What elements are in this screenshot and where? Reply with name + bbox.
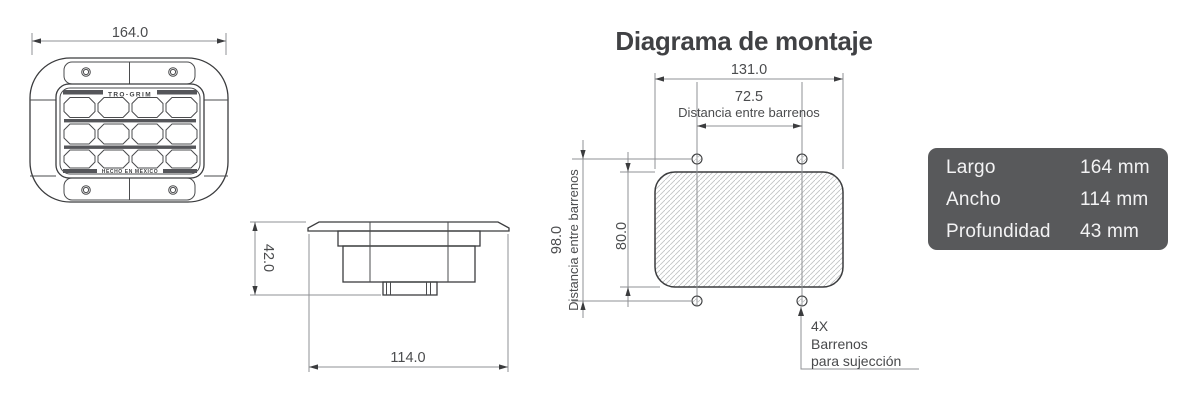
spec-row-largo: Largo 164 mm bbox=[928, 153, 1168, 182]
hole-spacing-horizontal-label: Distancia entre barrenos bbox=[678, 105, 820, 120]
cutout-height-dimension: 80.0 bbox=[614, 152, 660, 307]
cutout-shape bbox=[655, 172, 843, 287]
brand-band-left bbox=[63, 90, 103, 95]
holes-note: 4X Barrenos para sujección bbox=[798, 307, 919, 369]
side-depth-value: 42.0 bbox=[260, 244, 276, 272]
made-in-label: HECHO EN MEXICO bbox=[102, 169, 159, 175]
lens-separator-bar bbox=[64, 146, 196, 149]
spec-value: 114 mm bbox=[1080, 185, 1148, 214]
front-lens: TRO-GRIM bbox=[56, 84, 204, 178]
led-cell bbox=[64, 150, 95, 168]
spec-row-ancho: Ancho 114 mm bbox=[928, 185, 1168, 214]
mounting-hole bbox=[692, 154, 702, 164]
side-view: 42.0 114.0 bbox=[250, 222, 509, 372]
hole-spacing-vertical-value: 98.0 bbox=[549, 226, 565, 254]
spec-row-profundidad: Profundidad 43 mm bbox=[928, 217, 1168, 246]
cutout-height-value: 80.0 bbox=[614, 222, 630, 250]
mounting-diagram-page: 164.0 bbox=[0, 0, 1200, 400]
diagram-title: Diagrama de montaje bbox=[594, 26, 894, 57]
led-cell bbox=[166, 124, 197, 144]
madein-band-left bbox=[63, 169, 97, 173]
led-cell bbox=[98, 124, 129, 144]
mounting-hole bbox=[797, 296, 807, 306]
front-length-dimension: 164.0 bbox=[32, 25, 226, 55]
lens-separator-bar bbox=[64, 119, 196, 122]
hole-spacing-vertical-label: Distancia entre barrenos bbox=[566, 169, 581, 311]
madein-band-right bbox=[163, 169, 197, 173]
cutout-width-value: 131.0 bbox=[731, 62, 767, 78]
spec-value: 164 mm bbox=[1080, 153, 1150, 182]
side-width-value: 114.0 bbox=[390, 350, 425, 366]
led-cell bbox=[132, 150, 163, 168]
side-body-outline bbox=[308, 222, 509, 295]
spec-panel: Largo 164 mm Ancho 114 mm Profundidad 43… bbox=[928, 148, 1168, 250]
led-cell bbox=[132, 98, 163, 118]
led-cell bbox=[98, 98, 129, 118]
hole-spacing-horizontal-dimension: 72.5 Distancia entre barrenos bbox=[678, 89, 820, 129]
led-grid bbox=[64, 98, 197, 169]
front-view: 164.0 bbox=[30, 25, 228, 202]
side-width-dimension: 114.0 bbox=[309, 234, 508, 372]
holes-note-line1: 4X bbox=[811, 318, 829, 334]
led-cell bbox=[98, 150, 129, 168]
holes-note-line3: para sujección bbox=[811, 353, 901, 369]
holes-note-line2: Barrenos bbox=[811, 336, 868, 352]
spec-label: Profundidad bbox=[946, 217, 1051, 246]
mounting-hole bbox=[692, 296, 702, 306]
led-cell bbox=[64, 98, 95, 118]
hole-spacing-horizontal-value: 72.5 bbox=[735, 89, 763, 105]
brand-band-right bbox=[157, 90, 197, 95]
led-cell bbox=[166, 98, 197, 118]
led-cell bbox=[64, 124, 95, 144]
spec-value: 43 mm bbox=[1080, 217, 1139, 246]
spec-label: Ancho bbox=[946, 185, 1001, 214]
led-cell bbox=[132, 124, 163, 144]
side-depth-dimension: 42.0 bbox=[250, 222, 381, 295]
front-length-value: 164.0 bbox=[112, 25, 148, 41]
spec-label: Largo bbox=[946, 153, 996, 182]
led-cell bbox=[166, 150, 197, 168]
mounting-hole bbox=[797, 154, 807, 164]
mounting-cutout-diagram: 131.0 72.5 Distancia entre barrenos 98.0… bbox=[549, 62, 919, 369]
